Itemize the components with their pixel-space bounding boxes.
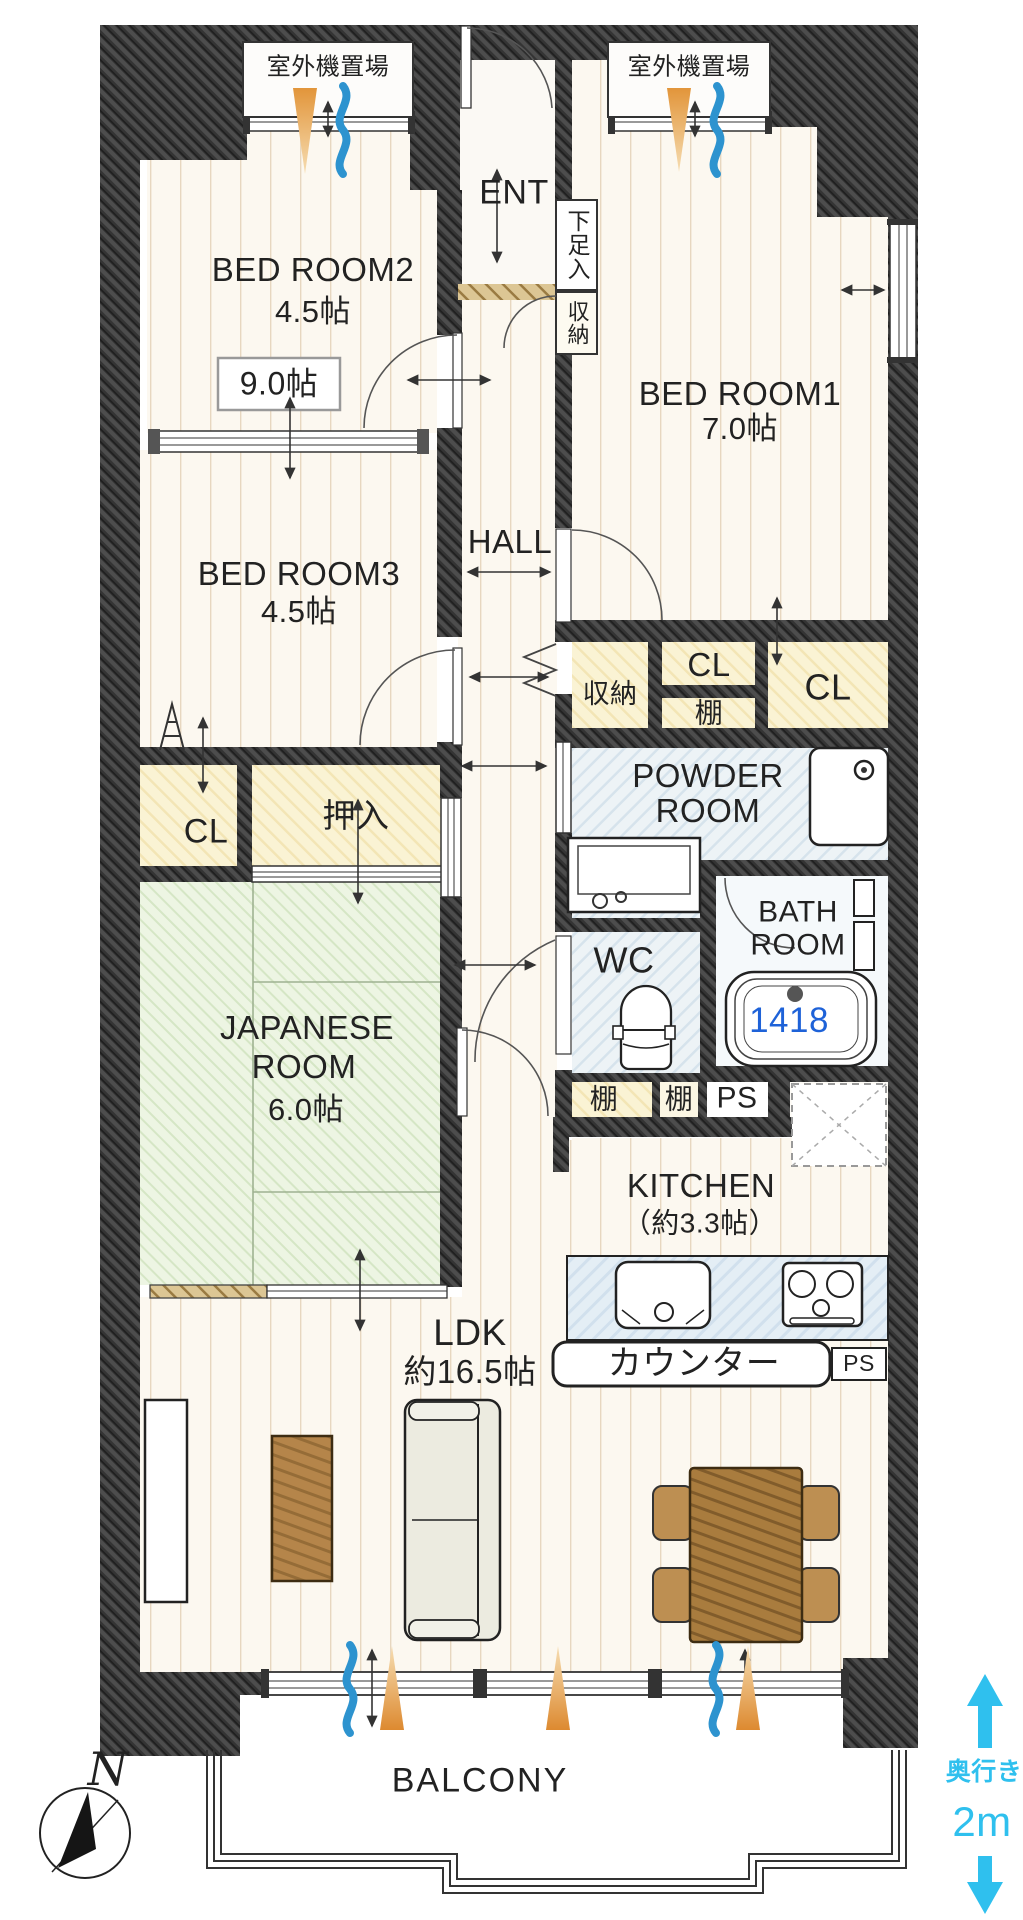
compass-icon	[40, 1788, 130, 1878]
label-bedroom3-size: 4.5帖	[261, 596, 337, 628]
stove	[783, 1263, 862, 1326]
label-bedroom2-size: 4.5帖	[275, 296, 351, 328]
label-bath-room-2: ROOM	[750, 929, 845, 960]
label-japanese-room-2: ROOM	[252, 1050, 357, 1084]
refrigerator-space	[792, 1084, 886, 1166]
label-bedroom3-name: BED ROOM3	[198, 557, 401, 591]
label-kitchen-size: （約3.3帖）	[623, 1208, 777, 1237]
washing-machine	[568, 838, 700, 912]
slider-bedroom2-3	[148, 429, 429, 454]
label-hall-storage: 収納	[583, 680, 638, 708]
tv-board	[145, 1400, 187, 1602]
depth-arrows	[967, 1674, 1003, 1914]
label-wc: WC	[594, 941, 655, 978]
label-ldk-size: 約16.5帖	[403, 1355, 536, 1389]
sill-japanese-south	[150, 1285, 447, 1298]
label-combined-size: 9.0帖	[240, 367, 319, 400]
slider-japanese-hall	[441, 798, 461, 897]
kitchen-counter	[567, 1256, 888, 1340]
arrow-up-icon	[967, 1674, 1003, 1748]
label-bathtub-size: 1418	[749, 1003, 829, 1039]
label-depth: 奥行き	[946, 1759, 1023, 1785]
label-cl-lower: CL	[184, 814, 228, 849]
sofa	[405, 1400, 500, 1640]
label-ps-lower: PS	[843, 1352, 875, 1376]
label-balcony: BALCONY	[392, 1763, 569, 1798]
powder-sink	[810, 748, 888, 845]
label-bedroom1-name: BED ROOM1	[639, 377, 842, 411]
label-depth-value: 2m	[952, 1800, 1011, 1844]
label-kitchen-name: KITCHEN	[627, 1169, 775, 1203]
label-powder-room-1: POWDER	[632, 759, 784, 793]
label-counter: カウンター	[608, 1346, 781, 1381]
shower-panel	[854, 880, 874, 970]
label-cl-upper-right: CL	[804, 668, 851, 705]
label-hall: HALL	[468, 525, 553, 559]
label-powder-room-2: ROOM	[656, 794, 761, 828]
label-wc-shelf-left: 棚	[590, 1084, 619, 1113]
coffee-table	[272, 1436, 332, 1581]
label-shoe-cabinet: 下足入	[564, 209, 588, 281]
label-entrance-storage: 収納	[565, 300, 588, 346]
label-ldk-name: LDK	[433, 1314, 506, 1352]
slider-powder-door	[556, 742, 571, 833]
floorplan-graphics	[0, 0, 1023, 1920]
label-oshiire: 押入	[323, 799, 390, 833]
slider-oshiire	[252, 866, 450, 882]
label-compass-n: N	[88, 1746, 129, 1794]
label-bath-room-1: BATH	[758, 896, 838, 927]
kitchen-sink	[616, 1262, 710, 1328]
label-japanese-room-size: 6.0帖	[268, 1094, 344, 1126]
label-entrance: ENT	[479, 175, 549, 210]
label-bedroom1-size: 7.0帖	[702, 413, 778, 445]
label-wc-shelf-right: 棚	[665, 1084, 694, 1113]
label-japanese-room-1: JAPANESE	[220, 1011, 394, 1045]
label-cl-upper: CL	[687, 648, 730, 682]
floorplan: 室外機置場 室外機置場 ENT 下足入 収納 BED ROOM2 4.5帖 9.…	[0, 0, 1023, 1920]
label-ps-upper: PS	[716, 1082, 757, 1113]
label-outdoor-unit-left: 室外機置場	[267, 56, 390, 81]
arrow-down-icon	[967, 1856, 1003, 1914]
label-bedroom2-name: BED ROOM2	[212, 253, 415, 287]
label-shelf-upper: 棚	[695, 698, 724, 727]
window-bedroom1-right	[887, 219, 918, 363]
label-outdoor-unit-right: 室外機置場	[628, 56, 751, 81]
